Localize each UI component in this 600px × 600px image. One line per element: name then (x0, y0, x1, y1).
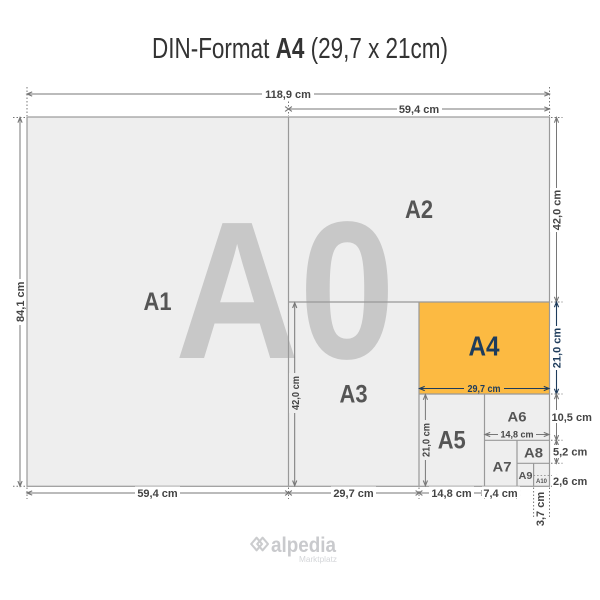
svg-text:alpedia: alpedia (271, 534, 336, 557)
svg-text:A0: A0 (175, 181, 395, 400)
svg-text:21,0 cm: 21,0 cm (422, 423, 433, 457)
svg-text:29,7 cm: 29,7 cm (333, 488, 374, 500)
svg-text:DIN-Format A4 (29,7 x 21cm): DIN-Format A4 (29,7 x 21cm) (152, 33, 448, 65)
svg-text:14,8 cm: 14,8 cm (431, 488, 472, 500)
svg-text:42,0 cm: 42,0 cm (552, 190, 564, 231)
svg-text:84,1 cm: 84,1 cm (15, 281, 27, 322)
svg-text:A4: A4 (469, 331, 500, 362)
svg-text:5,2 cm: 5,2 cm (553, 447, 587, 459)
svg-text:Marktplatz: Marktplatz (299, 555, 337, 564)
svg-text:A6: A6 (508, 408, 527, 424)
svg-text:A10: A10 (536, 478, 547, 485)
svg-text:A8: A8 (524, 444, 543, 460)
svg-text:A1: A1 (144, 288, 172, 316)
svg-text:A5: A5 (438, 427, 466, 455)
svg-text:59,4 cm: 59,4 cm (137, 488, 178, 500)
svg-text:3,7 cm: 3,7 cm (535, 492, 547, 526)
svg-text:A9: A9 (519, 470, 533, 482)
svg-text:42,0 cm: 42,0 cm (291, 376, 302, 410)
svg-text:2,6 cm: 2,6 cm (553, 476, 587, 488)
svg-text:A2: A2 (405, 196, 433, 224)
svg-text:21,0 cm: 21,0 cm (552, 328, 564, 369)
svg-text:A3: A3 (340, 381, 368, 409)
svg-text:A7: A7 (493, 458, 512, 474)
svg-text:59,4 cm: 59,4 cm (399, 104, 440, 116)
svg-text:10,5 cm: 10,5 cm (552, 412, 593, 424)
svg-text:7,4 cm: 7,4 cm (483, 488, 517, 500)
svg-text:29,7 cm: 29,7 cm (468, 384, 501, 395)
svg-text:118,9 cm: 118,9 cm (265, 89, 311, 101)
svg-text:14,8 cm: 14,8 cm (501, 430, 534, 440)
